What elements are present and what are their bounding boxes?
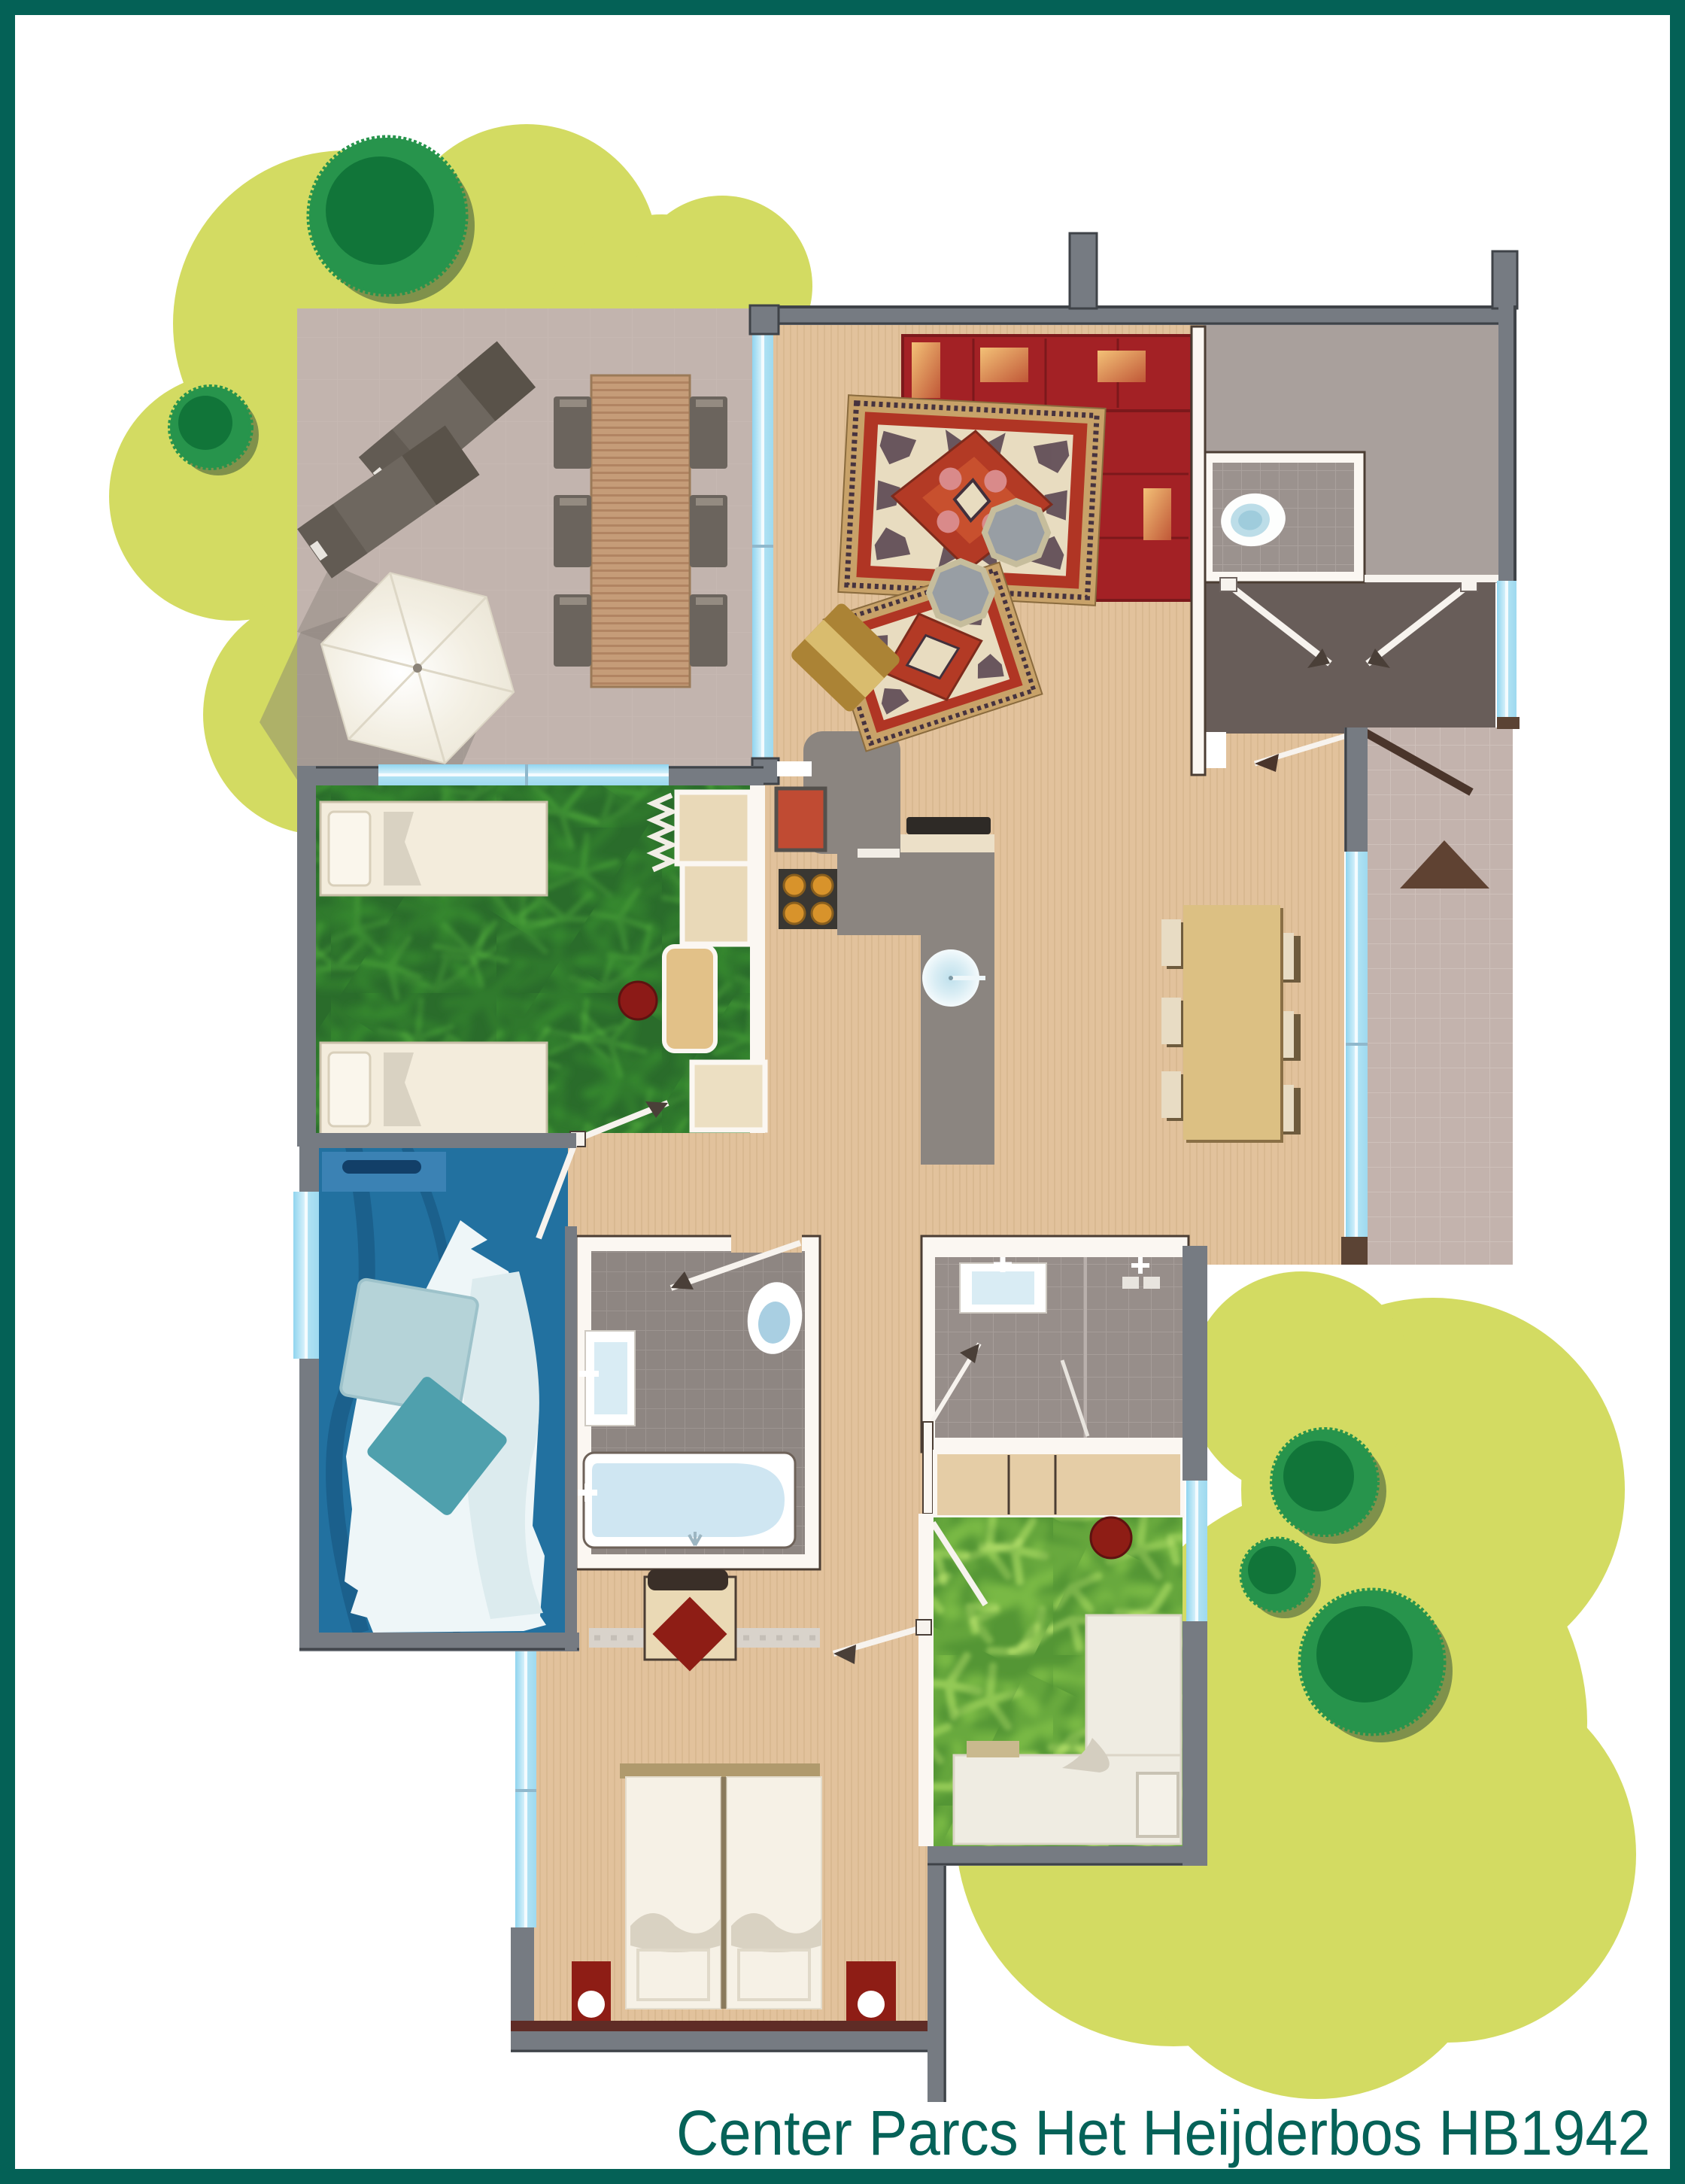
svg-text:Center Parcs Het Heijderbos HB: Center Parcs Het Heijderbos HB1942 bbox=[676, 2097, 1650, 2168]
